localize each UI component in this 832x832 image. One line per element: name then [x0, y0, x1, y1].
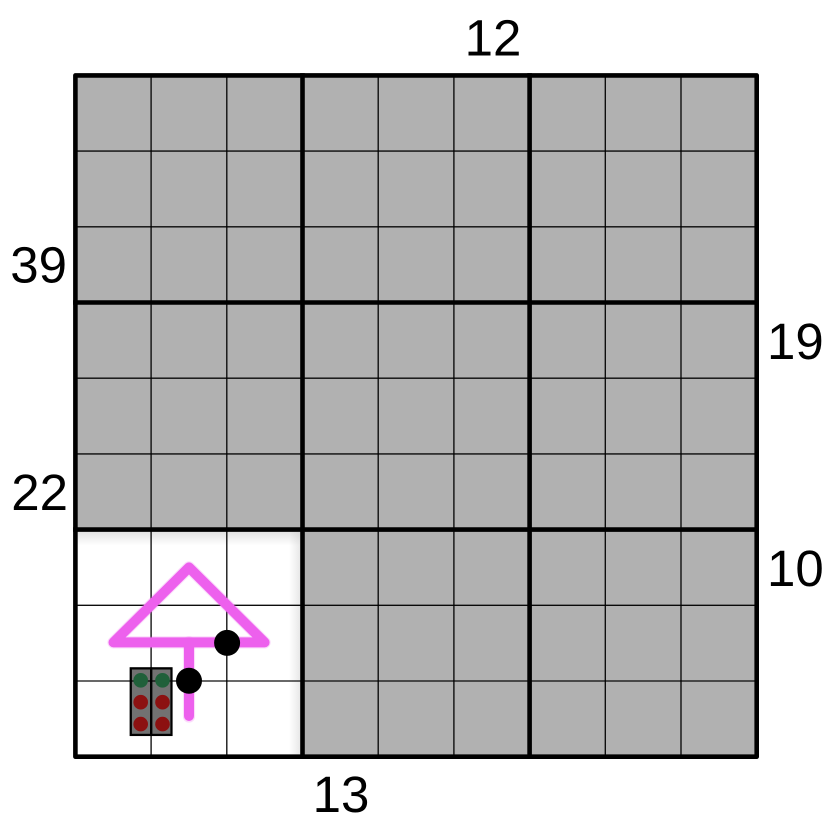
svg-text:22: 22 [11, 464, 68, 521]
svg-text:12: 12 [465, 10, 522, 67]
svg-text:19: 19 [767, 313, 824, 370]
svg-text:13: 13 [313, 766, 370, 823]
svg-text:10: 10 [767, 540, 824, 597]
svg-text:39: 39 [10, 237, 67, 294]
